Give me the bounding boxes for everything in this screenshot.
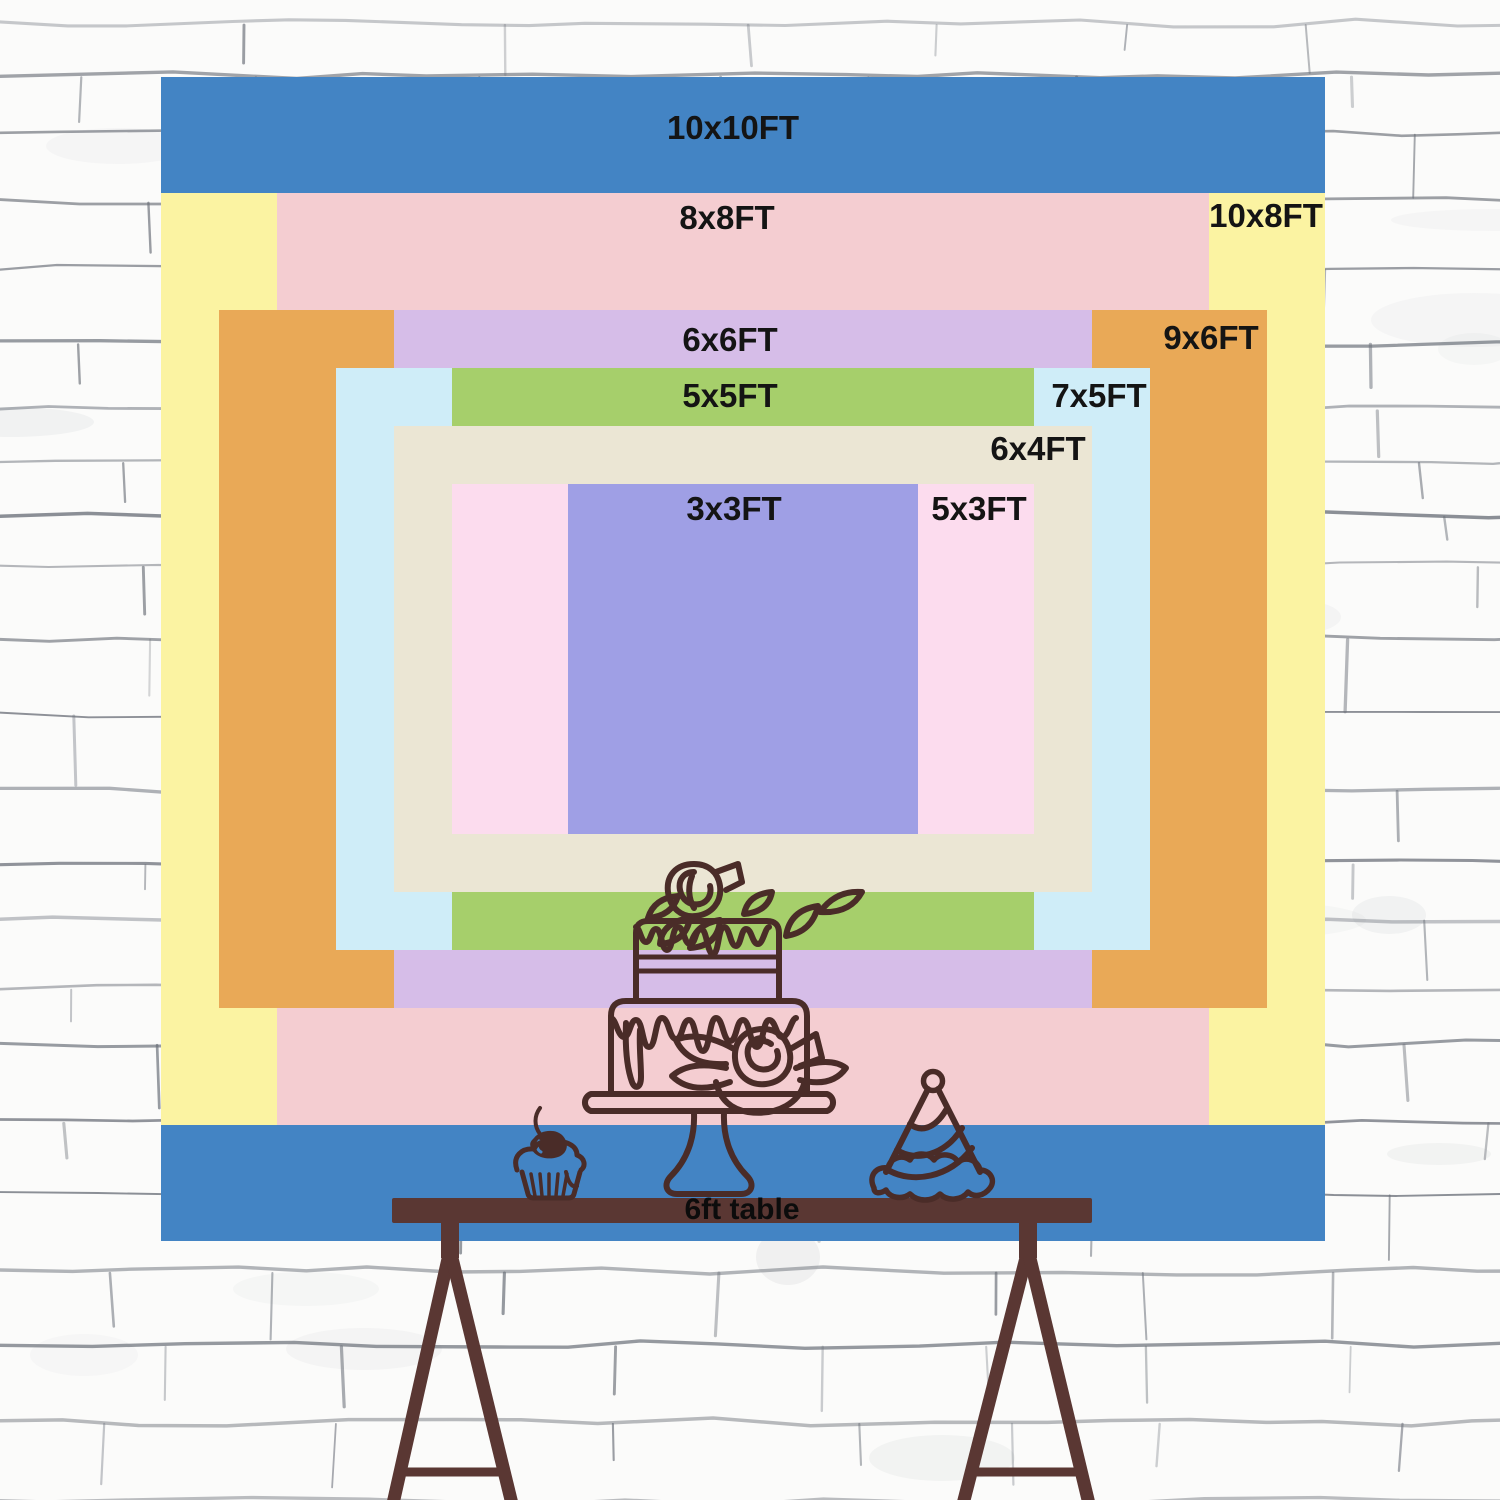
flower-petal (672, 1065, 730, 1087)
table-left-trestle (392, 1220, 513, 1500)
cake-drawing (585, 864, 862, 1194)
icing-long-drip (626, 1023, 641, 1087)
table-leg-stub (441, 1220, 459, 1258)
cake-topper-rose (648, 864, 862, 948)
leaf (820, 892, 862, 912)
table-leg-stub (1019, 1220, 1037, 1258)
leaf (744, 892, 772, 914)
rose-swirl (680, 872, 711, 904)
cherry-stem (536, 1108, 541, 1134)
table-right-trestle (962, 1220, 1090, 1500)
cupcake-drawing (516, 1108, 584, 1198)
scene: 6ft table 10x10FT10x8FT8x8FT9x6FT6x6FT7x… (0, 0, 1500, 1500)
top-tier-icing-drips (636, 927, 769, 954)
leaf (648, 896, 678, 918)
party-hat-drawing (872, 1072, 992, 1201)
table-leg (392, 1250, 450, 1500)
table-leg (962, 1250, 1028, 1500)
table-top (392, 1198, 1092, 1223)
cake-stand-stem (666, 1113, 751, 1194)
table-leg (1028, 1250, 1090, 1500)
rose-petal-line (689, 876, 694, 908)
flower-petal (796, 1062, 846, 1082)
flower-rose-detail (753, 1041, 771, 1044)
cup-pleats (531, 1174, 567, 1196)
leaf (786, 906, 818, 936)
table-leg (450, 1250, 513, 1500)
table-and-dessert-art (0, 0, 1500, 1500)
